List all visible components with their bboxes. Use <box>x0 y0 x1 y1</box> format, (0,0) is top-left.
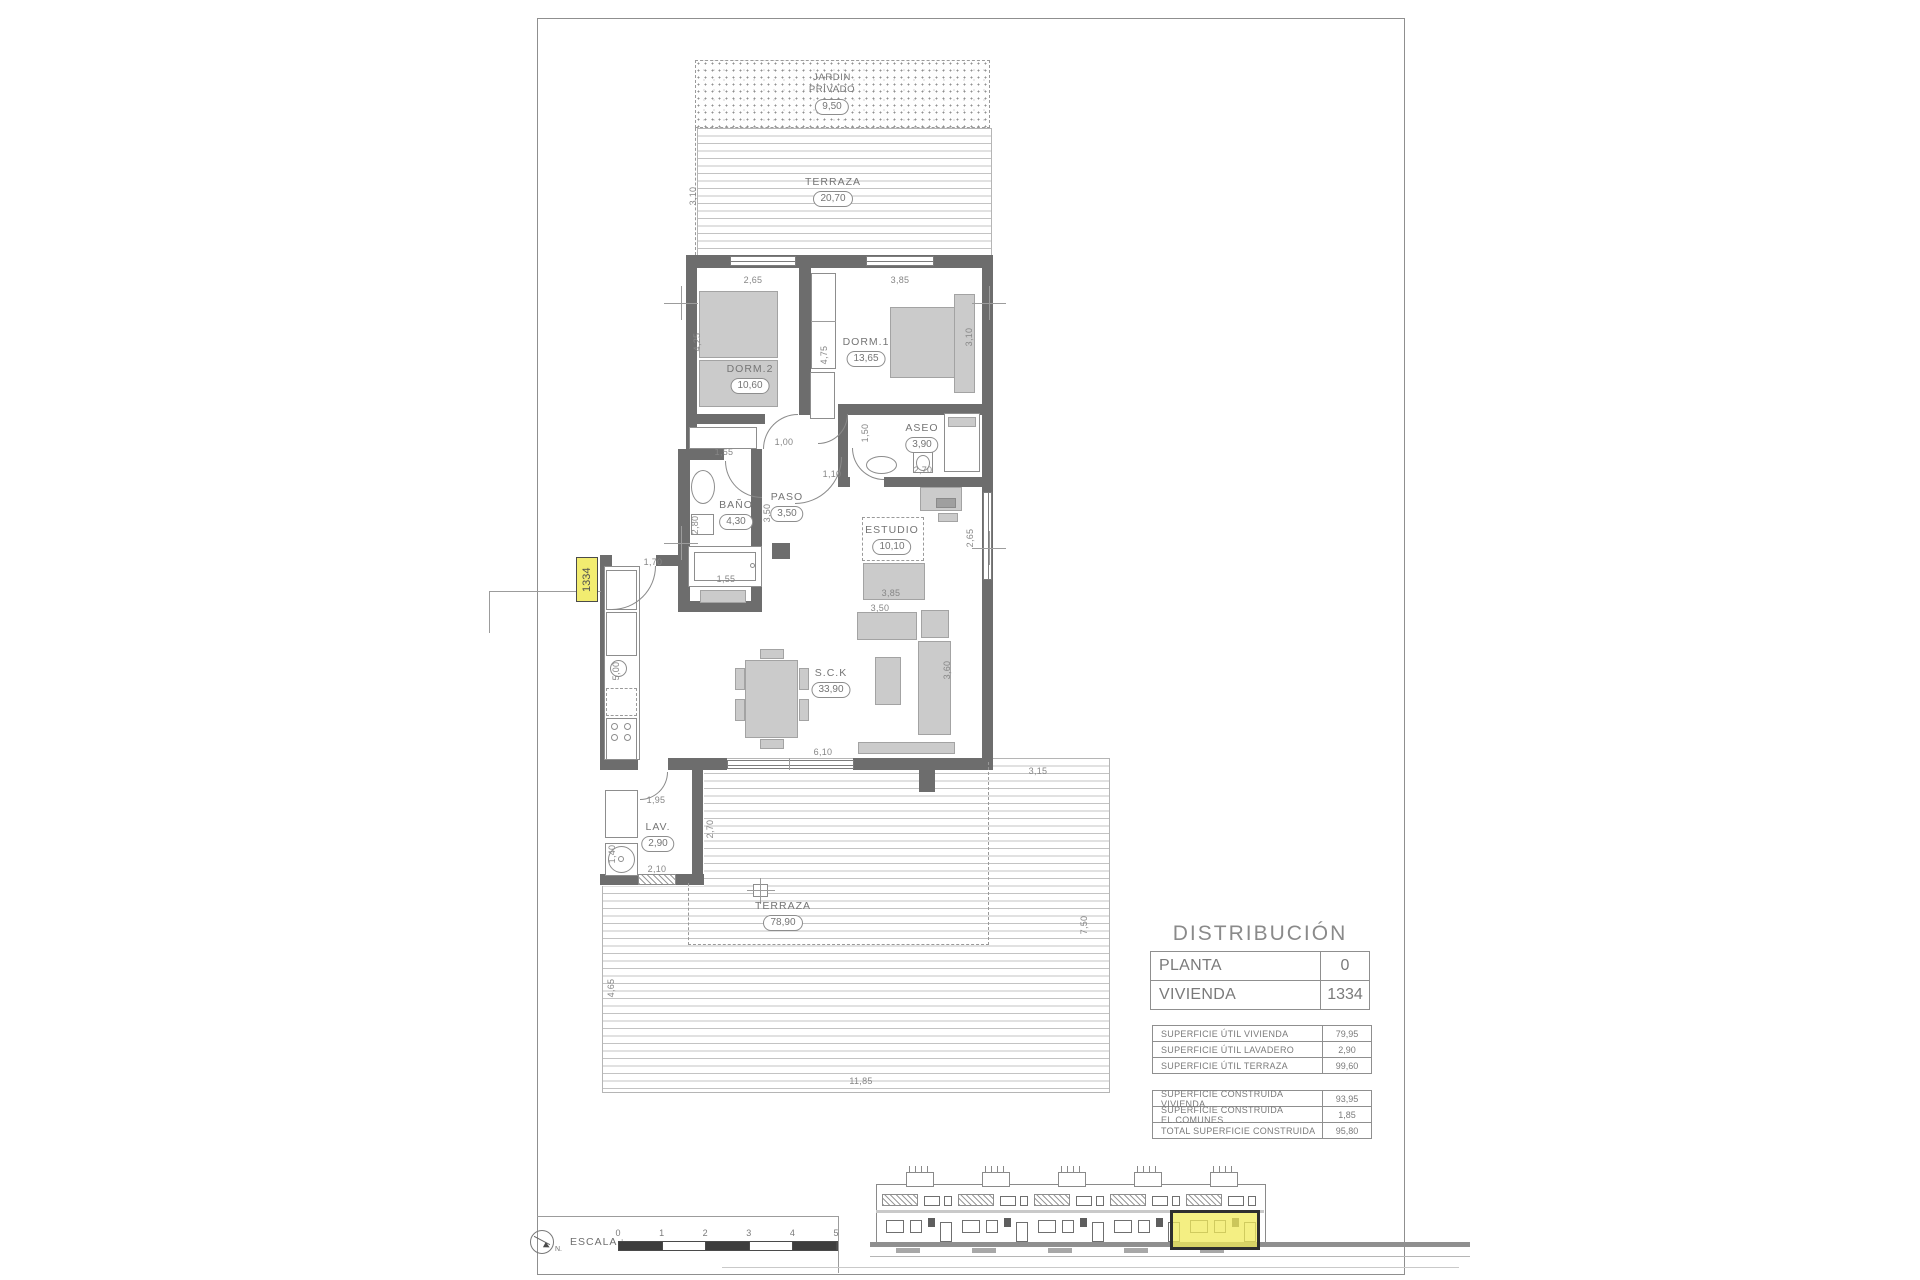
elevation-window <box>1096 1196 1104 1206</box>
table-row: PLANTA0 <box>1150 951 1370 981</box>
scale-tick-label: 4 <box>790 1228 795 1238</box>
wall-segment <box>692 770 703 874</box>
roof-railing-tick <box>1213 1166 1214 1172</box>
desk-monitor <box>936 498 956 508</box>
sanitary-fixture <box>611 734 618 741</box>
roof-railing-tick <box>1149 1166 1150 1172</box>
elevation-window <box>886 1220 904 1233</box>
room-label-lav: LAV.2,90 <box>641 821 674 852</box>
room-name: DORM.2 <box>727 363 774 375</box>
room-name: PASO <box>770 491 803 503</box>
room-area-value: 13,65 <box>846 351 885 367</box>
dimension-label: 5,00 <box>611 662 621 681</box>
elevation-plinth <box>1048 1248 1072 1253</box>
roof-railing-tick <box>1061 1166 1062 1172</box>
scale-bar <box>618 1241 838 1251</box>
room-name: BAÑO <box>719 499 753 511</box>
roof-railing-tick <box>1079 1166 1080 1172</box>
dimension-label: 3,85 <box>891 275 910 285</box>
roof-railing-tick <box>921 1166 922 1172</box>
elevation-window <box>1172 1196 1180 1206</box>
room-name: TERRAZA <box>805 176 861 188</box>
wall-segment <box>668 758 727 770</box>
unit-info-table: PLANTA0VIVIENDA1334 <box>1150 952 1370 1010</box>
unit-tag: 1334 <box>576 557 598 602</box>
elevation-vent <box>1080 1218 1087 1227</box>
roof-railing-tick <box>1143 1166 1144 1172</box>
wall-segment <box>982 268 993 473</box>
wall-segment <box>676 874 704 885</box>
wall-segment <box>686 414 765 424</box>
furniture <box>799 699 809 721</box>
dimension-label: 2,80 <box>690 516 700 535</box>
elevation-tower <box>906 1172 934 1187</box>
scale-tick-label: 5 <box>833 1228 838 1238</box>
sanitary-fixture <box>618 856 624 862</box>
elevation-window <box>1114 1220 1132 1233</box>
door-swing-arc <box>725 461 762 498</box>
roof-railing-tick <box>985 1166 986 1172</box>
sanitary-fixture <box>611 723 618 730</box>
room-area-value: 20,70 <box>813 191 852 207</box>
dimension-label: 3,60 <box>942 661 952 680</box>
roof-railing-tick <box>915 1166 916 1172</box>
elevation-window <box>986 1220 998 1233</box>
scale-tick-label: 2 <box>703 1228 708 1238</box>
dimension-label: 3,10 <box>688 187 698 206</box>
dimension-label: 2,65 <box>965 529 975 548</box>
sanitary-fixture <box>691 470 715 504</box>
roof-railing-tick <box>991 1166 992 1172</box>
section-cross-icon <box>681 526 682 560</box>
table-row: SUPERFICIE ÚTIL VIVIENDA79,95 <box>1152 1025 1372 1042</box>
scale-bar-segment <box>750 1242 794 1250</box>
furniture <box>735 668 745 690</box>
table-row-label: SUPERFICIE ÚTIL TERRAZA <box>1153 1058 1322 1073</box>
elevation-window <box>1062 1220 1074 1233</box>
dimension-label: 11,85 <box>849 1076 872 1086</box>
table-row-label: TOTAL SUPERFICIE CONSTRUIDA <box>1153 1123 1322 1138</box>
window <box>866 256 934 266</box>
fixture <box>606 612 637 656</box>
room-area-value: 3,50 <box>770 506 803 522</box>
elevation-tower <box>982 1172 1010 1187</box>
ground-line <box>870 1256 1470 1257</box>
room-label-estudio: ESTUDIO10,10 <box>865 524 919 555</box>
elevation-window <box>1138 1220 1150 1233</box>
roof-railing-tick <box>1137 1166 1138 1172</box>
room-name: TERRAZA <box>755 900 811 912</box>
dimension-label: 2,10 <box>648 864 667 874</box>
table-row-value: 2,90 <box>1322 1042 1371 1057</box>
room-name: PRIVADO <box>809 84 855 96</box>
scale-bar-segment <box>706 1242 750 1250</box>
room-area-value: 9,50 <box>815 99 848 115</box>
wall-segment <box>772 543 790 559</box>
room-area-value: 33,90 <box>811 682 850 698</box>
table-row-label: PLANTA <box>1151 952 1320 980</box>
dimension-label: 1,55 <box>717 574 736 584</box>
table-row-value: 79,95 <box>1322 1026 1371 1041</box>
table-row: SUPERFICIE ÚTIL TERRAZA99,60 <box>1152 1057 1372 1074</box>
floor-plan: 1334 JARDINPRIVADO9,50TERRAZA20,70DORM.2… <box>0 0 1920 1280</box>
room-area-value: 2,90 <box>641 836 674 852</box>
furniture <box>857 612 917 640</box>
window <box>983 492 992 580</box>
balcony-hatch <box>958 1194 994 1206</box>
furniture <box>918 641 951 735</box>
table-row-label: VIVIENDA <box>1151 981 1320 1009</box>
elevation-window <box>910 1220 922 1233</box>
window <box>730 256 796 266</box>
dimension-label: 3,85 <box>882 588 901 598</box>
room-label-bano: BAÑO4,30 <box>719 499 753 530</box>
dimension-label: 4,75 <box>819 346 829 365</box>
useful-surface-table: SUPERFICIE ÚTIL VIVIENDA79,95SUPERFICIE … <box>1152 1026 1372 1074</box>
elevation-window <box>1248 1196 1256 1206</box>
thin-line <box>789 758 790 770</box>
roof-railing-tick <box>927 1166 928 1172</box>
roof-railing-tick <box>1231 1166 1232 1172</box>
table-row-label: SUPERFICIE ÚTIL VIVIENDA <box>1153 1026 1322 1041</box>
table-row-label: SUPERFICIE CONSTRUIDA EL.COMUNES <box>1153 1107 1322 1122</box>
dishwasher-dashed <box>606 688 637 716</box>
room-area-value: 3,90 <box>905 437 938 453</box>
dimension-label: 2,65 <box>744 275 763 285</box>
roof-railing-tick <box>1155 1166 1156 1172</box>
furniture <box>700 590 746 603</box>
scale-tick-label: 3 <box>746 1228 751 1238</box>
footer-divider-vertical <box>838 1216 839 1273</box>
dimension-label: 4,65 <box>606 979 616 998</box>
roof-railing-tick <box>909 1166 910 1172</box>
built-surface-table: SUPERFICIE CONSTRUIDA VIVIENDA93,95SUPER… <box>1152 1091 1372 1139</box>
room-label-terraza-inf: TERRAZA78,90 <box>755 900 811 931</box>
furniture <box>948 417 976 427</box>
room-name: ASEO <box>905 422 938 434</box>
room-area-value: 4,30 <box>719 514 752 530</box>
table-row-value: 1334 <box>1320 981 1369 1009</box>
dimension-label: 3,15 <box>1029 766 1048 776</box>
elevation-window <box>962 1220 980 1233</box>
roof-railing-tick <box>1225 1166 1226 1172</box>
room-name: DORM.1 <box>843 336 890 348</box>
elevation-tower <box>1210 1172 1238 1187</box>
roof-railing-tick <box>1003 1166 1004 1172</box>
wall-segment <box>600 555 612 566</box>
room-area-value: 10,10 <box>872 539 911 555</box>
thin-line <box>489 591 490 633</box>
section-cross-icon <box>989 531 990 565</box>
dimension-label: 4,25 <box>692 333 702 352</box>
sanitary-fixture <box>624 734 631 741</box>
room-label-sck: S.C.K33,90 <box>811 667 850 698</box>
dimension-label: 1,40 <box>607 845 617 864</box>
table-row-value: 93,95 <box>1322 1091 1371 1106</box>
roof-railing-tick <box>1067 1166 1068 1172</box>
furniture <box>938 513 958 522</box>
elevation-vent <box>928 1218 935 1227</box>
table-row-value: 1,85 <box>1322 1107 1371 1122</box>
section-cross-icon <box>681 286 682 320</box>
fixture <box>605 790 638 838</box>
elevation-window <box>1152 1196 1168 1206</box>
furniture <box>799 668 809 690</box>
room-label-aseo: ASEO3,90 <box>905 422 938 453</box>
elevation-plinth <box>1124 1248 1148 1253</box>
roof-railing-tick <box>1219 1166 1220 1172</box>
terrace-useful-boundary <box>688 944 989 945</box>
roof-railing-tick <box>1073 1166 1074 1172</box>
room-name: ESTUDIO <box>865 524 919 536</box>
dimension-label: 6,10 <box>814 747 833 757</box>
elevation-door <box>940 1222 952 1242</box>
architectural-plan-sheet: { "title_block": { "title": "DISTRIBUCIÓ… <box>0 0 1920 1280</box>
room-area-value: 78,90 <box>763 915 802 931</box>
elevation-door <box>1092 1222 1104 1242</box>
furniture <box>760 649 784 659</box>
dimension-label: 1,95 <box>647 795 666 805</box>
table-row: VIVIENDA1334 <box>1150 980 1370 1010</box>
roof-railing-tick <box>997 1166 998 1172</box>
sanitary-fixture <box>750 563 755 568</box>
table-row-value: 95,80 <box>1322 1123 1371 1138</box>
elevation-window <box>1000 1196 1016 1206</box>
scale-bar-segment <box>619 1242 663 1250</box>
fixture <box>689 427 757 449</box>
elevation-door <box>1016 1222 1028 1242</box>
room-name: JARDIN <box>809 72 855 84</box>
terrace-useful-boundary <box>688 883 689 945</box>
fixture <box>810 372 835 419</box>
wall-segment <box>853 758 993 770</box>
elevation-plinth <box>972 1248 996 1253</box>
scale-bar-segment <box>793 1242 837 1250</box>
north-label: N. <box>555 1246 562 1253</box>
window <box>727 760 854 769</box>
dimension-label: 3,50 <box>871 603 890 613</box>
table-row: TOTAL SUPERFICIE CONSTRUIDA95,80 <box>1152 1122 1372 1139</box>
wall-segment <box>884 477 982 487</box>
dimension-label: 1,70 <box>644 557 663 567</box>
elevation-window <box>924 1196 940 1206</box>
door-swing-arc <box>852 448 884 480</box>
footer-divider <box>537 1216 839 1217</box>
furniture <box>745 660 798 738</box>
balcony-hatch <box>1034 1194 1070 1206</box>
thin-line <box>811 321 836 322</box>
furniture <box>858 742 955 754</box>
wall-segment <box>919 770 935 792</box>
furniture <box>890 307 957 378</box>
scale-tick-label: 1 <box>659 1228 664 1238</box>
furniture <box>699 291 778 358</box>
threshold-hatch <box>638 874 676 885</box>
ground-line-extended <box>722 1267 1459 1268</box>
room-area-value: 10,60 <box>730 378 769 394</box>
room-label-jardin: JARDINPRIVADO9,50 <box>809 72 855 115</box>
elevation-vent <box>1004 1218 1011 1227</box>
room-label-paso: PASO3,50 <box>770 491 803 522</box>
elevation-window <box>944 1196 952 1206</box>
balcony-hatch <box>1110 1194 1146 1206</box>
sanitary-fixture <box>624 723 631 730</box>
table-row-value: 0 <box>1320 952 1369 980</box>
furniture <box>760 739 784 749</box>
room-label-terraza-sup: TERRAZA20,70 <box>805 176 861 207</box>
table-row-value: 99,60 <box>1322 1058 1371 1073</box>
table-row: SUPERFICIE CONSTRUIDA EL.COMUNES1,85 <box>1152 1106 1372 1123</box>
elevation-plinth <box>896 1248 920 1253</box>
wall-segment <box>982 610 993 770</box>
highlighted-unit <box>1170 1210 1260 1250</box>
north-compass-icon <box>530 1230 554 1254</box>
furniture <box>875 657 901 705</box>
room-label-dorm1: DORM.113,65 <box>843 336 890 367</box>
terrace-useful-boundary <box>988 762 989 945</box>
dimension-label: 1,10 <box>823 469 842 479</box>
dimension-label: 2,70 <box>914 465 933 475</box>
scale-bar-segment <box>663 1242 707 1250</box>
elevation-tower <box>1134 1172 1162 1187</box>
elevation-window <box>1038 1220 1056 1233</box>
table-row-label: SUPERFICIE ÚTIL LAVADERO <box>1153 1042 1322 1057</box>
thin-line <box>747 890 775 891</box>
wall-segment <box>678 449 690 612</box>
dimension-label: 7,50 <box>1079 916 1089 935</box>
room-label-dorm2: DORM.210,60 <box>727 363 774 394</box>
room-name: S.C.K <box>811 667 850 679</box>
distribution-title: DISTRIBUCIÓN <box>1150 922 1370 946</box>
dimension-label: 2,70 <box>705 820 715 839</box>
scale-tick-label: 0 <box>615 1228 620 1238</box>
door-swing-arc <box>612 566 656 610</box>
furniture <box>735 699 745 721</box>
dimension-label: 3,10 <box>964 328 974 347</box>
furniture <box>921 610 949 638</box>
elevation-tower <box>1058 1172 1086 1187</box>
room-name: LAV. <box>641 821 674 833</box>
elevation-window <box>1228 1196 1244 1206</box>
dimension-label: 1,55 <box>715 447 734 457</box>
elevation-vent <box>1156 1218 1163 1227</box>
section-cross-icon <box>989 286 990 320</box>
balcony-hatch <box>882 1194 918 1206</box>
elevation-window <box>1020 1196 1028 1206</box>
dimension-label: 1,50 <box>860 424 870 443</box>
balcony-hatch <box>1186 1194 1222 1206</box>
dimension-label: 1,00 <box>775 437 794 447</box>
table-row: SUPERFICIE ÚTIL LAVADERO2,90 <box>1152 1041 1372 1058</box>
elevation-window <box>1076 1196 1092 1206</box>
